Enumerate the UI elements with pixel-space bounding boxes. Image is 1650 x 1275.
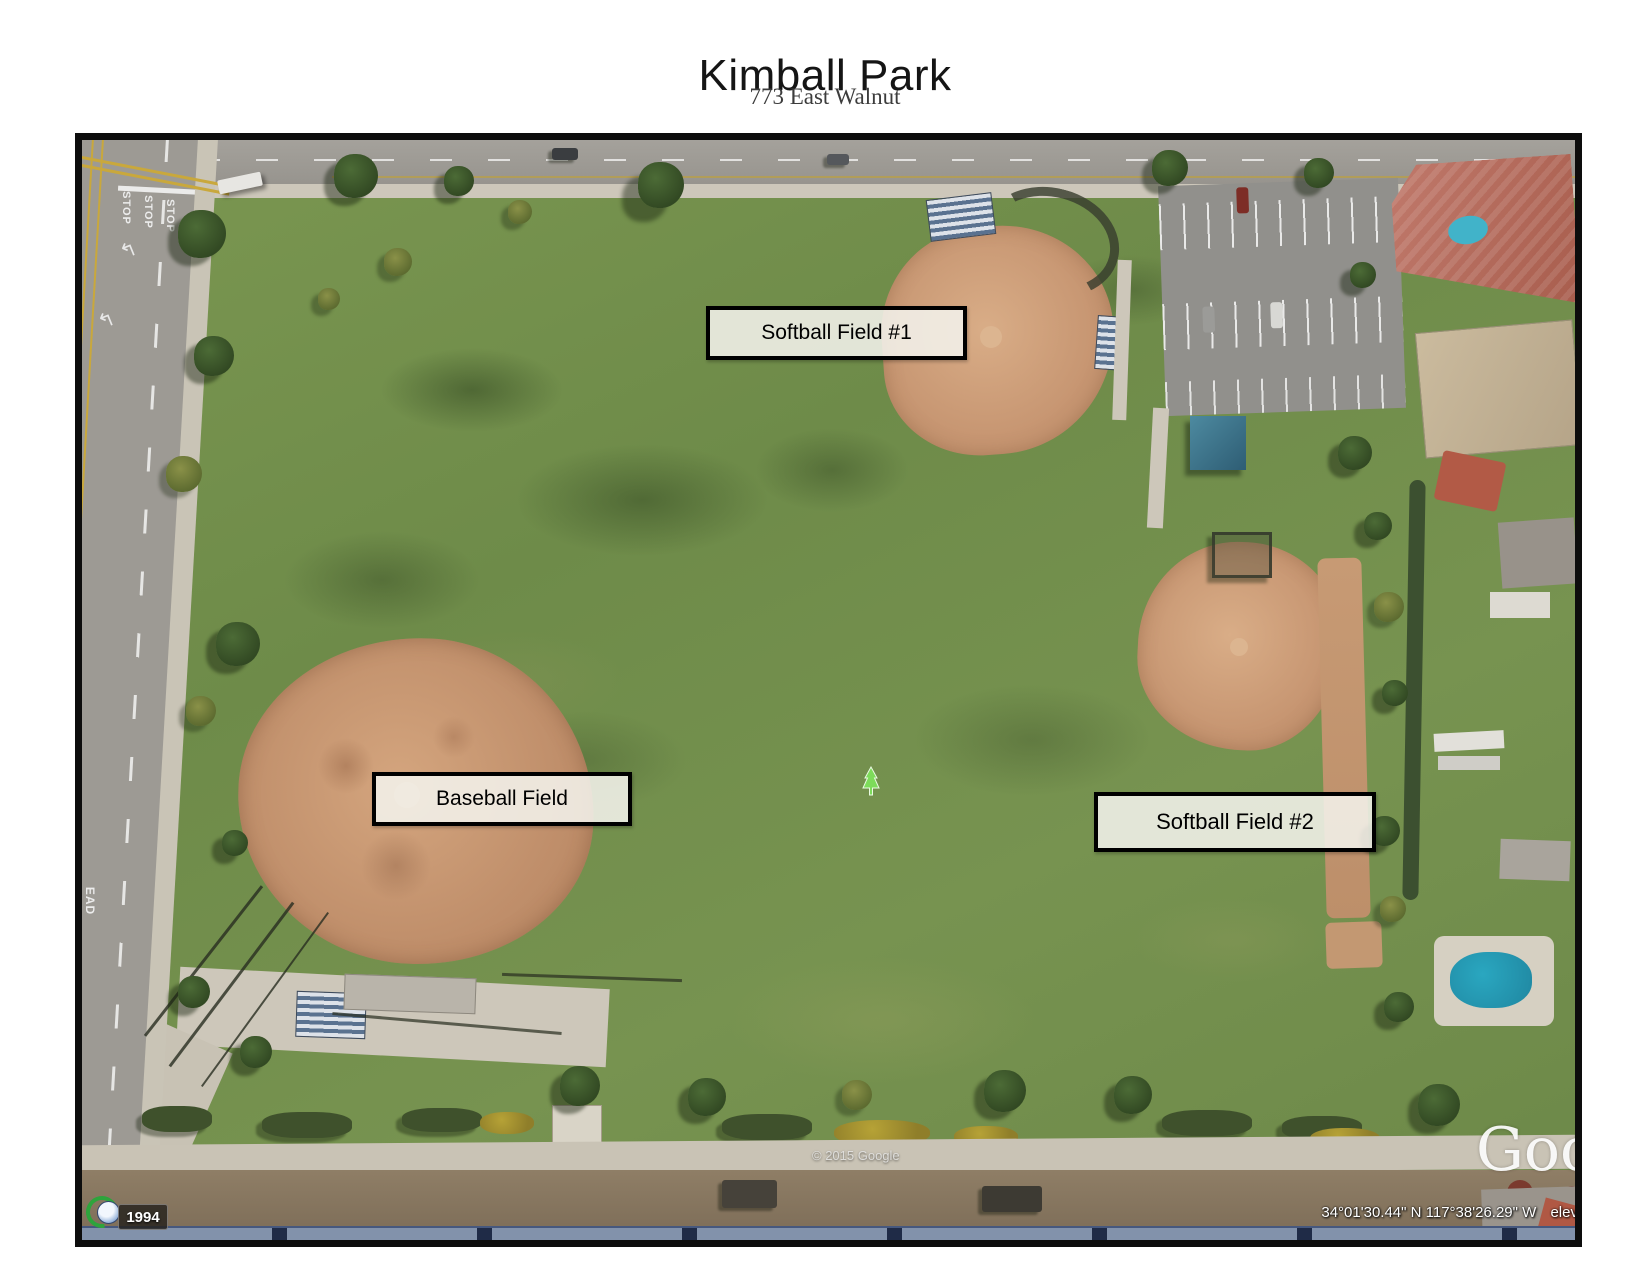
ahead-road-marking: EAD — [83, 887, 97, 915]
aerial-photo: STOP STOP STOP ↰ ↰ EAD — [75, 133, 1582, 1247]
pitchers-mound — [980, 326, 1002, 348]
car — [552, 148, 578, 160]
label-softball-field-1: Softball Field #1 — [706, 306, 967, 360]
hedge — [262, 1112, 352, 1138]
google-watermark: Goo — [1476, 1115, 1582, 1185]
shed — [1499, 839, 1570, 881]
tree — [318, 288, 340, 310]
house-roof — [1415, 319, 1582, 458]
rv — [1434, 730, 1505, 752]
hedge — [142, 1106, 212, 1132]
elevation-text: elev — [1550, 1204, 1578, 1221]
page-subtitle: 773 East Walnut — [0, 84, 1650, 110]
imagery-year-badge[interactable]: 1994 — [118, 1204, 168, 1230]
dirt-path — [1317, 557, 1370, 918]
historical-imagery-clock-icon[interactable] — [90, 1198, 118, 1226]
car — [827, 154, 849, 165]
car — [1236, 187, 1249, 213]
stop-road-marking: STOP — [120, 191, 132, 225]
turn-arrow-road-marking: ↰ — [94, 306, 119, 335]
double-yellow-line — [75, 138, 104, 1247]
restroom-building — [1190, 416, 1246, 470]
time-slider-bar[interactable] — [82, 1226, 1575, 1243]
coordinates-readout: 34°01'30.44" N 117°38'26.29" W elev — [1262, 1204, 1578, 1221]
label-softball-field-2: Softball Field #2 — [1094, 792, 1376, 852]
hedge — [722, 1114, 812, 1140]
parking-lot — [1158, 178, 1406, 416]
clock-face — [97, 1201, 120, 1224]
stop-road-marking: STOP — [164, 199, 176, 233]
snack-building — [343, 974, 476, 1015]
lat-lon-text: 34°01'30.44" N 117°38'26.29" W — [1321, 1204, 1536, 1221]
car — [1270, 302, 1283, 328]
shed — [1490, 592, 1550, 618]
car — [982, 1186, 1042, 1212]
backstop — [1212, 532, 1272, 578]
hedge — [1162, 1110, 1252, 1136]
label-baseball-field: Baseball Field — [372, 772, 632, 826]
copyright-text: © 2015 Google — [812, 1148, 900, 1163]
tree-placemark-icon[interactable] — [862, 766, 880, 796]
car — [1202, 306, 1215, 332]
turn-arrow-road-marking: ↰ — [116, 236, 141, 265]
dirt-pad — [1325, 921, 1383, 969]
house-roof — [1498, 517, 1578, 588]
flowering-bush — [480, 1112, 534, 1134]
pool — [1450, 952, 1532, 1008]
parking-stalls — [1159, 196, 1400, 250]
car — [722, 1180, 777, 1208]
bleachers — [926, 192, 997, 242]
rv — [1438, 756, 1500, 770]
pitchers-mound — [1230, 638, 1248, 656]
stop-road-marking: STOP — [142, 195, 154, 229]
hedge — [402, 1108, 482, 1132]
